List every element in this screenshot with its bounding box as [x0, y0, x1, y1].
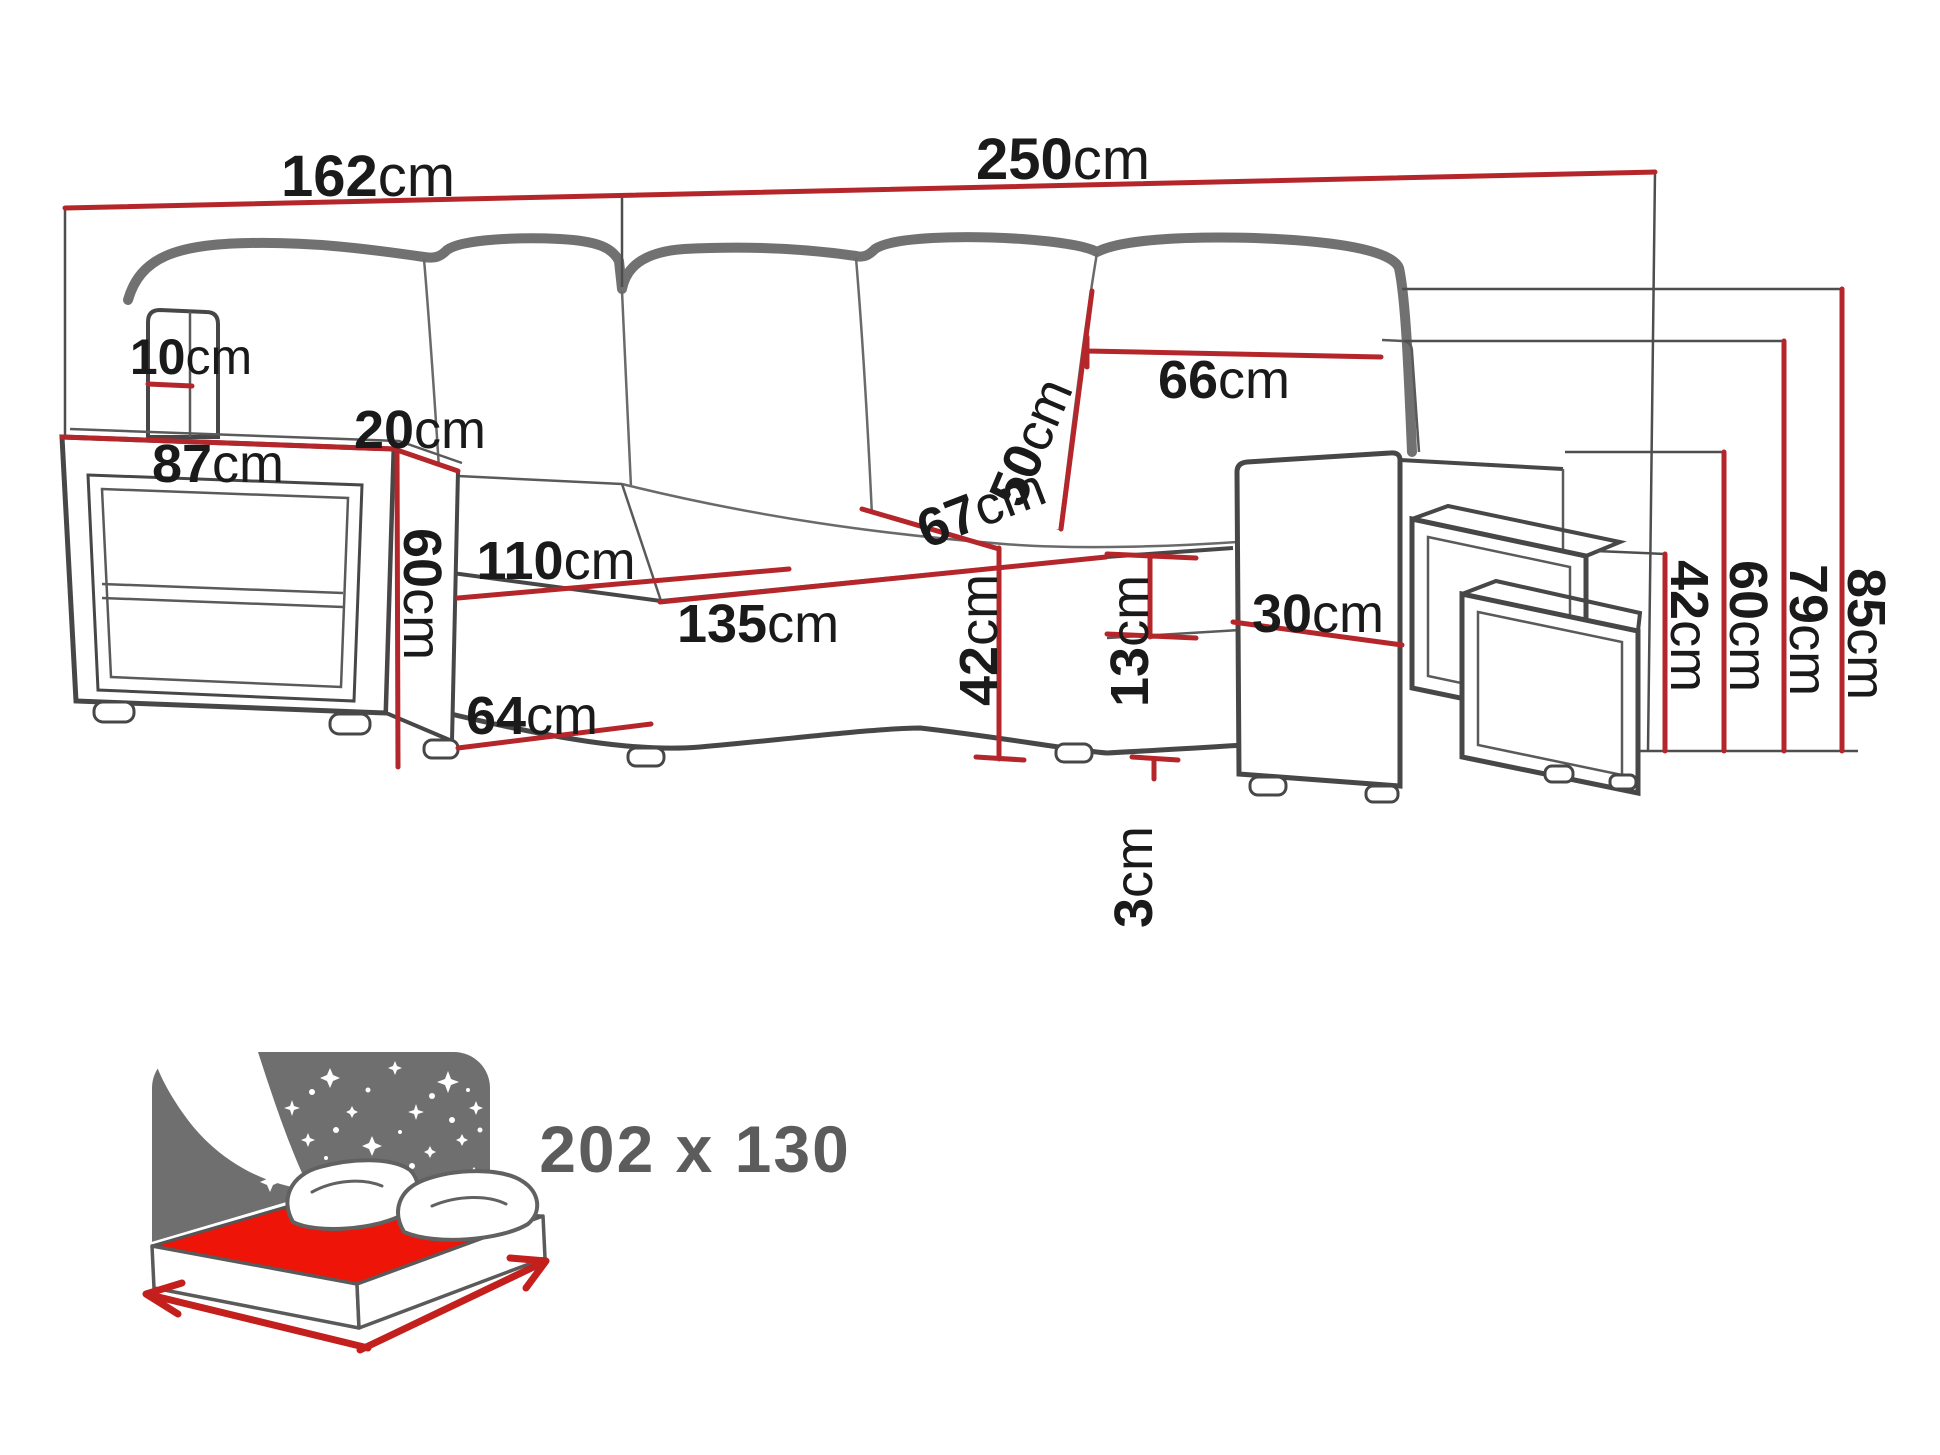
label-42cm-seat: 42cm: [949, 574, 1009, 706]
seat-foot: [1056, 744, 1092, 762]
right-armrest-side-top: [1400, 460, 1563, 469]
chaise-foot: [628, 748, 664, 766]
sofa-illustration: [62, 237, 1640, 802]
sleeping-area-size-label: 202 x 130: [539, 1112, 851, 1186]
label-20cm: 20cm: [354, 400, 486, 460]
label-64cm: 64cm: [466, 686, 598, 746]
label-30cm: 30cm: [1252, 584, 1384, 644]
label-135cm: 135cm: [677, 594, 839, 654]
label-66cm: 66cm: [1158, 350, 1290, 410]
label-110cm: 110cm: [476, 531, 635, 591]
ext-right: [1648, 172, 1655, 751]
label-60cm-left: 60cm: [392, 528, 452, 660]
ext-42: [1596, 551, 1665, 554]
label-162cm: 162cm: [281, 144, 455, 209]
label-13cm: 13cm: [1100, 575, 1160, 707]
sleep-function-icon: 202 x 130: [140, 1052, 851, 1350]
label-85cm: 85cm: [1836, 568, 1896, 700]
stool-foot-2: [1610, 775, 1636, 789]
label-250cm: 250cm: [976, 127, 1150, 192]
label-60cm-right: 60cm: [1718, 560, 1778, 692]
label-42cm-right: 42cm: [1659, 560, 1719, 692]
left-armrest-foot-2: [330, 714, 370, 734]
label-79cm: 79cm: [1778, 564, 1838, 696]
stool-small-frame: [1462, 594, 1638, 793]
pillow-right: [398, 1171, 537, 1240]
label-87cm: 87cm: [152, 434, 284, 494]
right-armrest-foot-2: [1366, 786, 1398, 802]
sofa-dimension-diagram: 162cm 250cm 10cm 20cm 87cm 60cm 110cm 13…: [0, 0, 1940, 1455]
nesting-stools: [1412, 506, 1640, 793]
dim-line-3: [1132, 757, 1178, 779]
stool-foot-1: [1545, 766, 1573, 782]
right-armrest-foot-1: [1250, 777, 1286, 795]
label-3cm: 3cm: [1104, 826, 1164, 928]
left-armrest-foot-3: [424, 740, 458, 758]
label-10cm: 10cm: [130, 329, 252, 385]
diagram-canvas: 162cm 250cm 10cm 20cm 87cm 60cm 110cm 13…: [0, 0, 1940, 1455]
left-armrest-foot-1: [94, 702, 134, 722]
